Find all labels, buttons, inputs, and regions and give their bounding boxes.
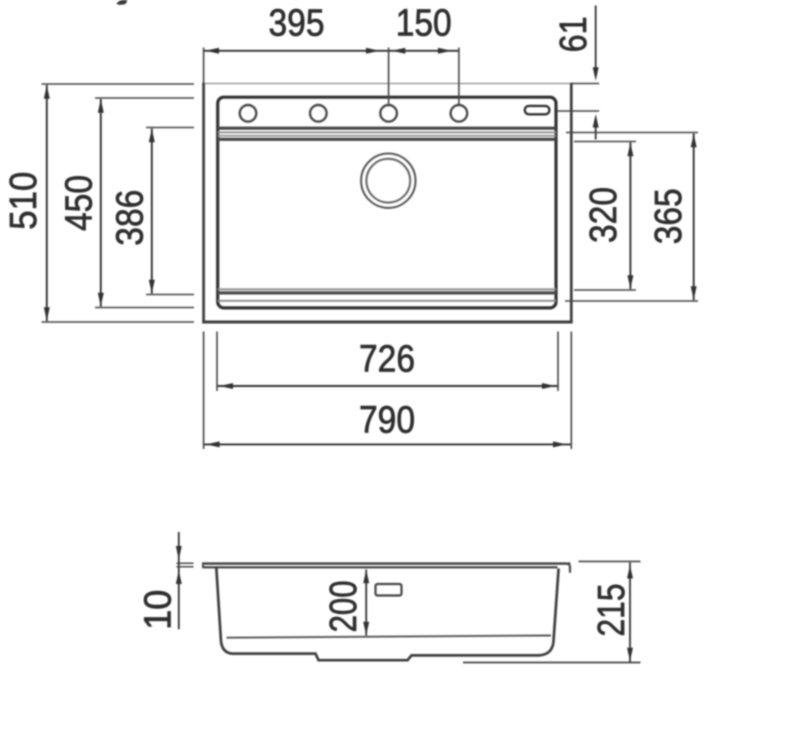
svg-text:61: 61 [553,16,595,52]
svg-text:386: 386 [109,190,151,246]
svg-text:320: 320 [583,187,625,243]
svg-text:215: 215 [591,584,633,637]
svg-text:200: 200 [323,580,365,632]
svg-text:450: 450 [58,175,100,231]
svg-text:510: 510 [3,172,45,230]
svg-text:10: 10 [137,590,179,630]
svg-text:395: 395 [269,3,325,45]
svg-text:365: 365 [648,188,690,244]
svg-text:790: 790 [359,400,415,442]
svg-text:726: 726 [359,339,415,381]
svg-text:150: 150 [396,3,452,45]
